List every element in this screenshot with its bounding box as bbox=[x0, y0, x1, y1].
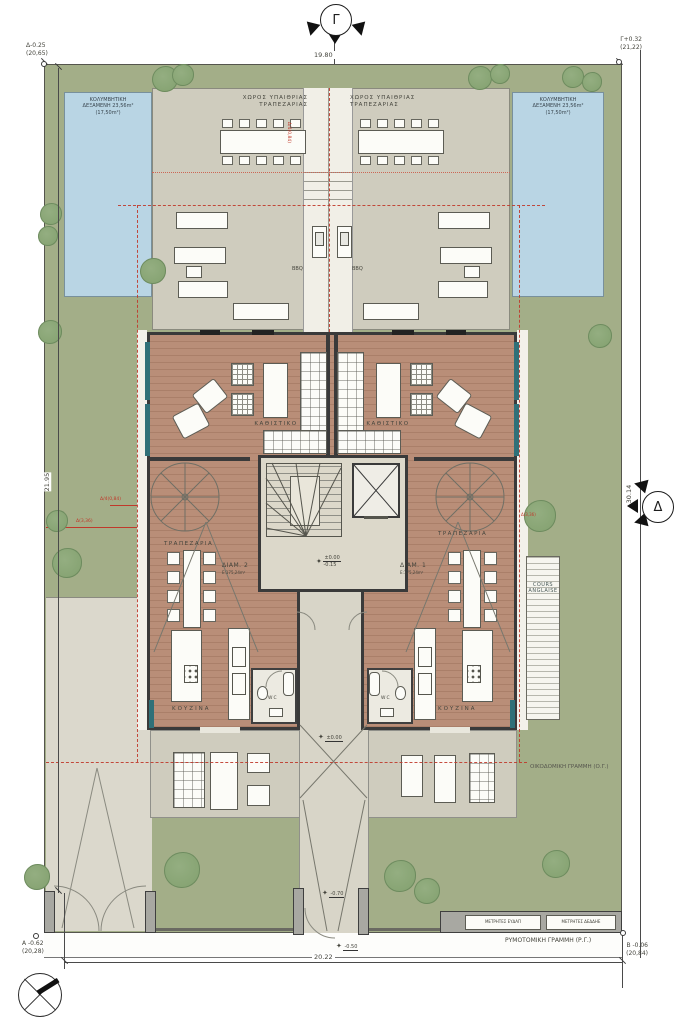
survey-point bbox=[33, 933, 39, 939]
dim-text-left: 21.95 bbox=[43, 473, 51, 492]
corner-elevation-alt: (21,22) bbox=[596, 44, 642, 52]
tree-icon bbox=[140, 258, 166, 284]
setback-line bbox=[118, 205, 545, 206]
cours-line2: ANGLAISE bbox=[527, 588, 559, 594]
level-value: ±0.00 bbox=[325, 735, 342, 742]
apartment-area-text: Ε:175,24m² bbox=[222, 570, 266, 575]
apartment-id-text: ΔΙΑΜ. 2 bbox=[222, 562, 266, 570]
dim-text-top: 19.80 bbox=[312, 51, 335, 59]
section-letter: Γ bbox=[332, 13, 339, 28]
linework-layer bbox=[0, 0, 684, 1024]
level-star-icon: ✦ bbox=[318, 733, 324, 741]
tree-icon bbox=[414, 878, 440, 904]
pool-label: ΚΟΛΥΜΒΗΤΙΚΗ ΔΕΞΑΜΕΝΗ 23,56m² (17,50m²) bbox=[514, 97, 602, 116]
section-marker-right: Δ bbox=[642, 491, 674, 523]
level-star-icon: ✦ bbox=[336, 942, 342, 950]
building-line-label: ΟΙΚΟΔΟΜΙΚΗ ΓΡΑΜΜΗ (Ο.Γ.) bbox=[530, 764, 609, 771]
room-label-dining: ΤΡΑΠΕΖΑΡΙΑ bbox=[164, 541, 213, 548]
outdoor-dining-line2: ΤΡΑΠΕΖΑΡΙΑΣ bbox=[220, 102, 308, 109]
level-value: -0.70 bbox=[329, 891, 344, 898]
pool-label-line3: (17,50m²) bbox=[514, 110, 602, 116]
tree-icon bbox=[164, 852, 200, 888]
stair-fan bbox=[266, 463, 341, 536]
dim-connector bbox=[64, 893, 65, 969]
dim-text-bottom: 20.22 bbox=[312, 953, 335, 961]
corner-elevation: Β -0.06 bbox=[602, 942, 648, 950]
corner-label-bottom-right: Β -0.06 (20,84) bbox=[602, 942, 648, 958]
apartment-id: ΔΙΑΜ. 2 Ε:175,24m² bbox=[222, 562, 266, 575]
corner-elevation: Γ+0.32 bbox=[596, 36, 642, 44]
entry-canopy-x bbox=[300, 725, 367, 931]
tree-icon bbox=[468, 66, 492, 90]
axis-line bbox=[329, 88, 330, 332]
cours-anglaise-label: COURS ANGLAISE bbox=[527, 582, 559, 595]
dim-line-right bbox=[640, 50, 641, 958]
driveway-lines bbox=[54, 768, 146, 931]
outdoor-dining-line1: ΧΩΡΟΣ ΥΠΑΙΘΡΙΑΣ bbox=[350, 95, 438, 102]
level-marker-street: ✦ -0.50 bbox=[336, 942, 358, 951]
room-label-wc: WC bbox=[381, 696, 391, 702]
setback-line bbox=[519, 205, 520, 762]
level-star-icon: ✦ bbox=[316, 557, 322, 565]
tree-icon bbox=[384, 860, 416, 892]
tree-icon bbox=[562, 66, 584, 88]
section-marker-top: Γ bbox=[320, 4, 352, 36]
meter-power-label: ΜΕΤΡΗΤΕΣ ΔΕΔΔΗΕ bbox=[546, 919, 616, 924]
setback-dim-text: Δ/4(0,84) bbox=[100, 497, 121, 502]
room-label-kitchen: ΚΟΥΖΙΝΑ bbox=[172, 706, 211, 713]
apartment-id: ΔΙΑΜ. 1 Ε:175,24m² bbox=[400, 562, 444, 575]
section-arrow-icon bbox=[627, 499, 638, 513]
spiral-stair-icon bbox=[151, 463, 219, 531]
bbq-label: BBQ bbox=[292, 266, 303, 272]
setback-dim-text: Δ/4(0,84) bbox=[286, 122, 291, 143]
pool-label-line3: (17,50m²) bbox=[66, 110, 150, 116]
tree-icon bbox=[588, 324, 612, 348]
pool-label: ΚΟΛΥΜΒΗΤΙΚΗ ΔΕΞΑΜΕΝΗ 23,56m² (17,50m²) bbox=[66, 97, 150, 116]
level-marker-core: ✦ ±0.00 -0.15 bbox=[316, 555, 341, 569]
outdoor-dining-label: ΧΩΡΟΣ ΥΠΑΙΘΡΙΑΣ ΤΡΑΠΕΖΑΡΙΑΣ bbox=[220, 95, 308, 109]
corner-label-top-right: Γ+0.32 (21,22) bbox=[596, 36, 642, 52]
setback-dim-line bbox=[110, 505, 137, 506]
apartment-area-text: Ε:175,24m² bbox=[400, 570, 444, 575]
section-letter: Δ bbox=[654, 500, 663, 515]
elevator-x-icon bbox=[354, 465, 398, 516]
corner-elevation: Α -0.62 bbox=[22, 940, 44, 948]
tree-icon bbox=[38, 226, 58, 246]
tree-icon bbox=[24, 864, 50, 890]
setback-line bbox=[137, 205, 138, 762]
dim-line-bottom bbox=[64, 962, 623, 963]
tree-icon bbox=[582, 72, 602, 92]
level-star-icon: ✦ bbox=[322, 889, 328, 897]
room-label-kitchen: ΚΟΥΖΙΝΑ bbox=[438, 706, 477, 713]
corner-elevation-alt: (20,65) bbox=[26, 50, 48, 58]
setback-dim-text: Δ(3,36) bbox=[521, 512, 536, 517]
meter-water-label: ΜΕΤΡΗΤΕΣ ΕΥΔΑΠ bbox=[465, 919, 541, 924]
level-value: -0.50 bbox=[343, 944, 358, 951]
compass-needle bbox=[36, 978, 59, 995]
tree-icon bbox=[542, 850, 570, 878]
corner-elevation-alt: (20,84) bbox=[602, 950, 648, 958]
tree-icon bbox=[172, 64, 194, 86]
survey-point bbox=[620, 930, 626, 936]
level-marker-porch: ✦ -0.70 bbox=[322, 889, 344, 898]
building-regulation-line bbox=[46, 762, 527, 763]
survey-point bbox=[616, 59, 622, 65]
level-marker-entry: ✦ ±0.00 bbox=[318, 733, 343, 742]
street-line-label: ΡΥΜΟΤΟΜΙΚΗ ΓΡΑΜΜΗ (Ρ.Γ.) bbox=[505, 937, 591, 945]
survey-point bbox=[41, 61, 47, 67]
corner-label-top-left: Δ-0.25 (20,65) bbox=[26, 42, 48, 58]
north-compass-icon bbox=[18, 973, 62, 1017]
tree-icon bbox=[52, 548, 82, 578]
apartment-id-text: ΔΙΑΜ. 1 bbox=[400, 562, 444, 570]
corner-elevation: Δ-0.25 bbox=[26, 42, 48, 50]
outdoor-dining-line1: ΧΩΡΟΣ ΥΠΑΙΘΡΙΑΣ bbox=[220, 95, 308, 102]
bbq-label: BBQ bbox=[352, 266, 363, 272]
dim-line-left bbox=[58, 68, 59, 893]
room-label-wc: WC bbox=[268, 696, 278, 702]
setback-dim-text: Δ(3,36) bbox=[76, 519, 93, 524]
level-value: -0.15 bbox=[323, 562, 340, 568]
corner-elevation-alt: (20,28) bbox=[22, 948, 44, 956]
room-label-dining: ΤΡΑΠΕΖΑΡΙΑ bbox=[438, 531, 487, 538]
tree-icon bbox=[490, 64, 510, 84]
room-label-living: ΚΑΘΙΣΤΙΚΟ bbox=[360, 421, 416, 428]
room-label-living: ΚΑΘΙΣΤΙΚΟ bbox=[248, 421, 304, 428]
level-value: ±0.00 bbox=[323, 555, 340, 562]
spiral-stair-icon bbox=[436, 463, 504, 531]
corner-label-bottom-left: Α -0.62 (20,28) bbox=[22, 940, 44, 956]
outdoor-dining-label: ΧΩΡΟΣ ΥΠΑΙΘΡΙΑΣ ΤΡΑΠΕΖΑΡΙΑΣ bbox=[350, 95, 438, 109]
outdoor-dining-line2: ΤΡΑΠΕΖΑΡΙΑΣ bbox=[350, 102, 438, 109]
setback-line-dotted bbox=[152, 172, 510, 173]
tree-icon bbox=[46, 510, 68, 532]
site-plan-drawing: ΚΟΛΥΜΒΗΤΙΚΗ ΔΕΞΑΜΕΝΗ 23,56m² (17,50m²) Κ… bbox=[0, 0, 684, 1024]
